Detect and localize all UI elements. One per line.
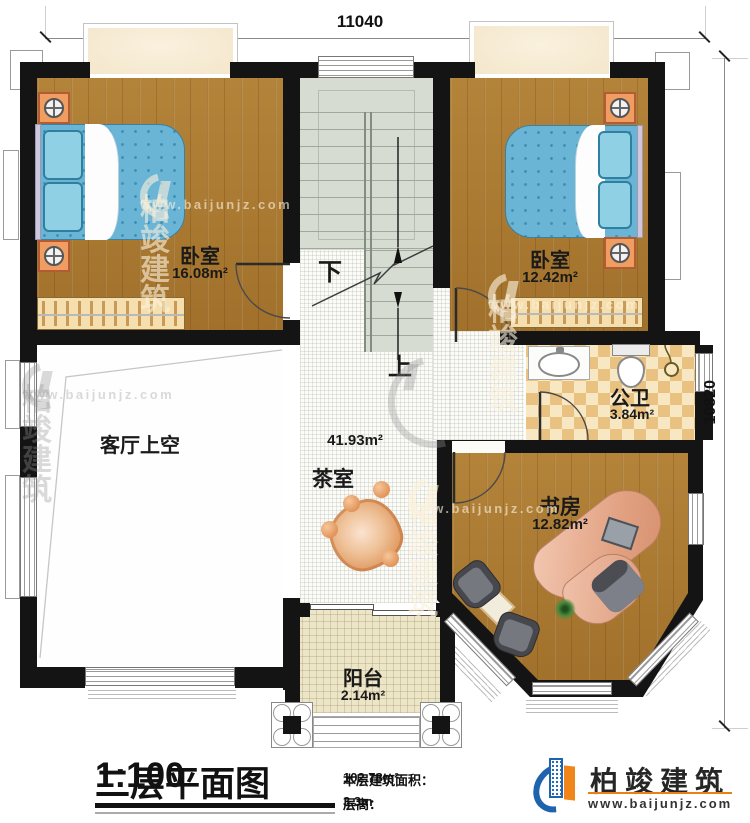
logo-building-blue <box>549 758 563 798</box>
tea-room-label: 茶室 <box>298 468 368 491</box>
living-void-label: 客厅上空 <box>85 435 195 457</box>
stair-arrowhead <box>394 246 402 263</box>
plan-scale: 1:100 <box>95 756 185 796</box>
floor-height-value: 3.3m <box>343 794 373 809</box>
title-underline-thin <box>95 812 335 814</box>
door-swing-arc <box>456 288 510 342</box>
balcony-area: 2.14m² <box>328 688 398 703</box>
floor-plan-canvas: 11040 10820 <box>0 0 750 823</box>
bathroom-area: 3.84m² <box>597 407 667 422</box>
stair-up-label: 上 <box>382 355 418 381</box>
bedroom-right-area: 12.42m² <box>500 270 600 287</box>
door-swing-arc <box>454 452 505 503</box>
tea-room-area: 41.93m² <box>305 433 405 450</box>
logo-building-orange <box>564 765 575 800</box>
shower-hose <box>665 345 671 364</box>
living-void-outline <box>40 350 282 658</box>
stair-arrowhead <box>394 292 402 308</box>
stair-down-label: 下 <box>312 260 348 286</box>
door-swing-arc <box>540 392 588 440</box>
company-website: www.baijunjz.com <box>588 792 732 811</box>
right-dimension-label: 10820 <box>702 380 720 425</box>
company-logo-icon <box>535 756 587 820</box>
study-area: 12.82m² <box>520 517 600 534</box>
title-underline <box>95 803 335 808</box>
bedroom-left-area: 16.08m² <box>150 266 250 283</box>
floor-area-value: 102.78m² <box>343 770 399 785</box>
top-dimension-label: 11040 <box>300 12 420 32</box>
